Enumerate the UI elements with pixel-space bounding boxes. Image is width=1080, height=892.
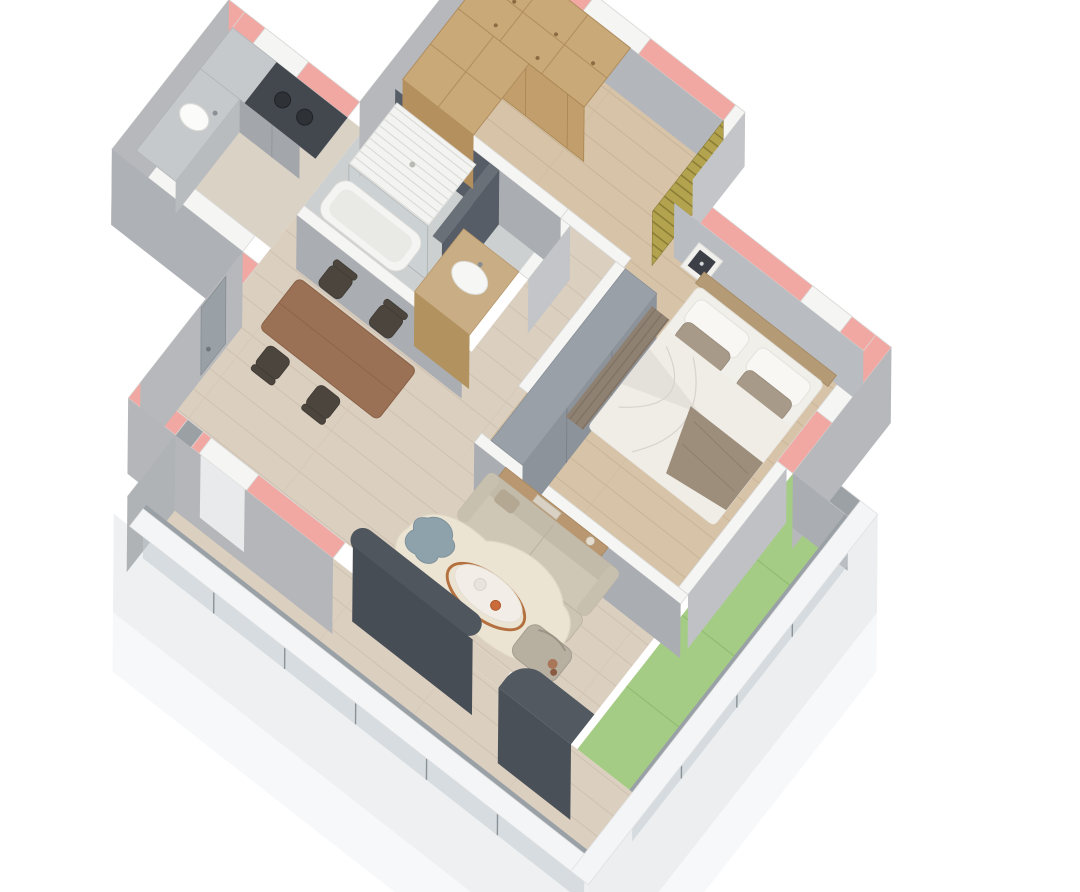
- rotated-plan: [0, 0, 1080, 892]
- floor-plan-rendering: [0, 0, 1080, 892]
- axonometric-scene: [0, 0, 1080, 892]
